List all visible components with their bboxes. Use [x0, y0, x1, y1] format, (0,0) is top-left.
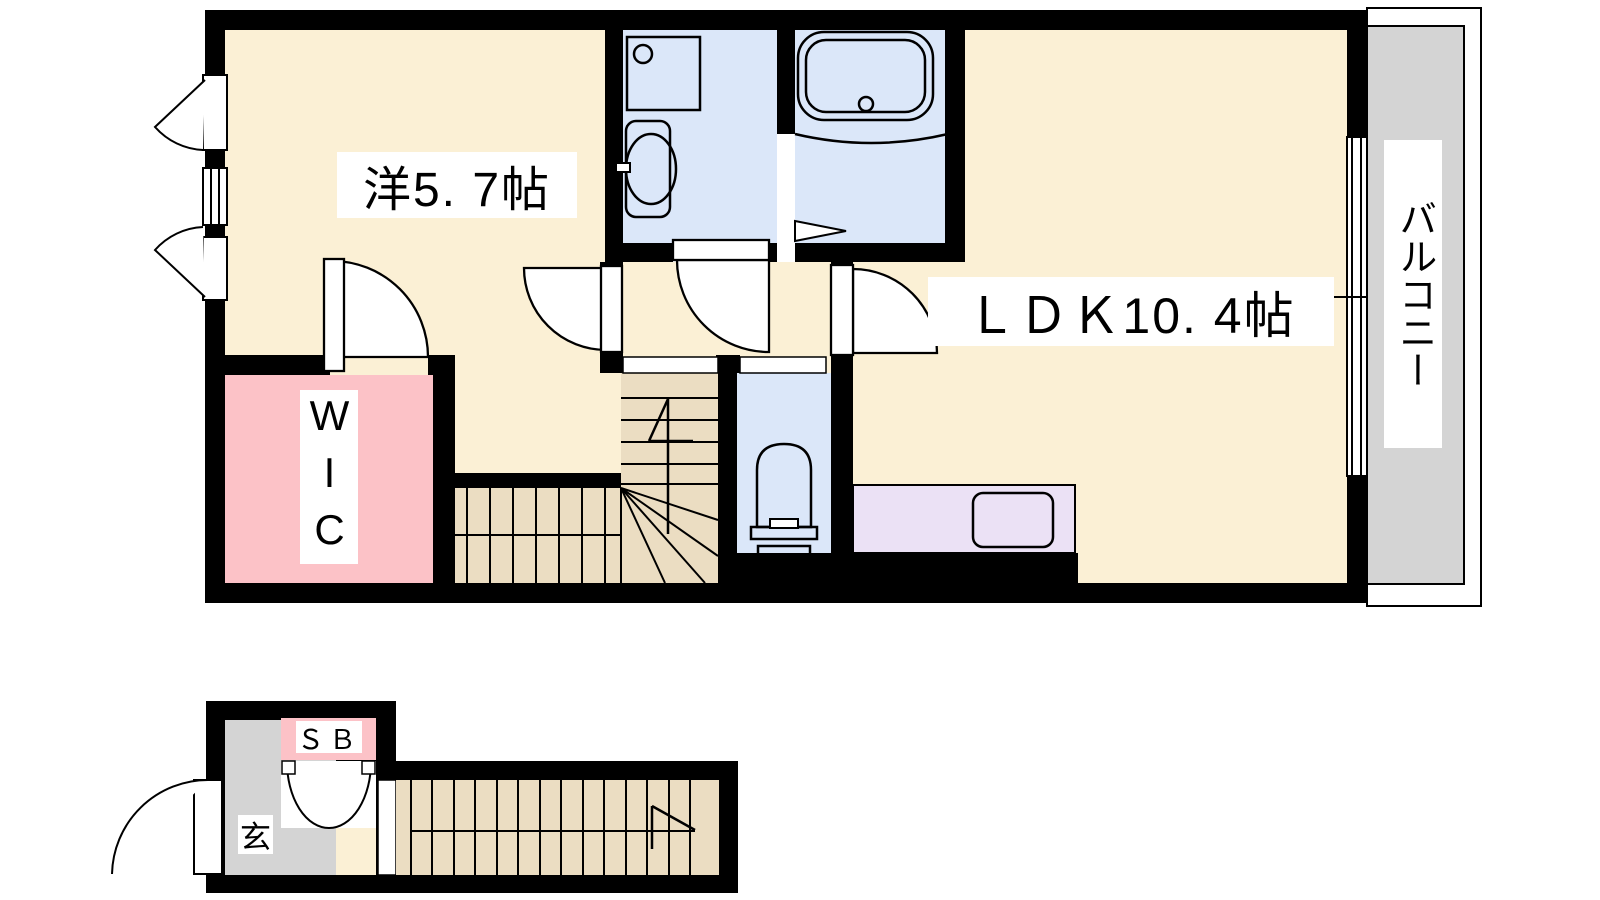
kitchen	[853, 485, 1075, 553]
wall-stairs-toilet	[718, 373, 737, 558]
balcony-sliding-window	[1347, 137, 1367, 476]
wall-hall-stairs-right	[716, 355, 740, 373]
kitchen-counter	[853, 485, 1075, 553]
wall-bedroom-wic-left	[205, 355, 330, 375]
wall-bath-ldk	[945, 30, 965, 262]
bedroom-window-top	[203, 75, 227, 150]
entrance-hall-opening	[378, 780, 396, 875]
wall-wic-stairs	[433, 355, 455, 583]
ldk-label: ＬＤＫ10. 4帖	[928, 277, 1334, 346]
shoe-box-label: ＳＢ	[296, 721, 362, 753]
lower-stairs-floor	[396, 780, 719, 875]
toilet-door	[740, 357, 826, 373]
wall-right-lower	[1347, 476, 1367, 603]
floor-plan-page: 洋5. 7帖 ＬＤＫ10. 4帖 バルコニー WIC ＳＢ 玄	[0, 0, 1600, 900]
wall-hall-stairs-left	[600, 355, 623, 373]
entrance-label: 玄	[238, 815, 273, 854]
bedroom-door-leaf	[601, 266, 622, 352]
wall-right-upper	[1347, 10, 1367, 137]
wall-top	[205, 10, 1367, 30]
washroom-door-leaf	[673, 240, 769, 260]
stairs-landing-opening	[623, 357, 718, 373]
closet-door-right-leaf	[362, 761, 375, 774]
entry-door	[112, 780, 222, 874]
wic-label: WIC	[300, 390, 358, 564]
bathroom-floor	[795, 30, 945, 243]
bedroom-window-top-swing	[155, 80, 205, 150]
wall-kitchen-base	[718, 553, 1078, 603]
entry-door-leaf	[194, 780, 222, 874]
floor-plan-drawing	[0, 0, 1600, 900]
closet-door-left-leaf	[282, 761, 295, 774]
toilet-lid-notch	[770, 519, 798, 528]
basin-faucet	[616, 163, 630, 172]
wall-hall-stairwell	[453, 473, 621, 488]
ldk-door-leaf	[831, 265, 853, 355]
stairs-upper-run	[621, 373, 718, 583]
bath-door-gap	[777, 134, 795, 244]
bedroom-window-bottom-swing	[155, 227, 205, 297]
balcony-label: バルコニー	[1384, 140, 1442, 448]
wall-bedroom-washroom	[605, 30, 623, 262]
bedroom-window-middle	[203, 168, 227, 225]
hall-floor-strip	[336, 828, 376, 875]
wic-door-leaf	[324, 259, 344, 371]
bedroom-window-bottom	[203, 237, 227, 300]
wall-washroom-bath	[777, 30, 795, 134]
bedroom-label: 洋5. 7帖	[337, 152, 577, 218]
bath-door-gap-lower	[777, 243, 795, 262]
lower-floor-plan	[112, 701, 738, 893]
